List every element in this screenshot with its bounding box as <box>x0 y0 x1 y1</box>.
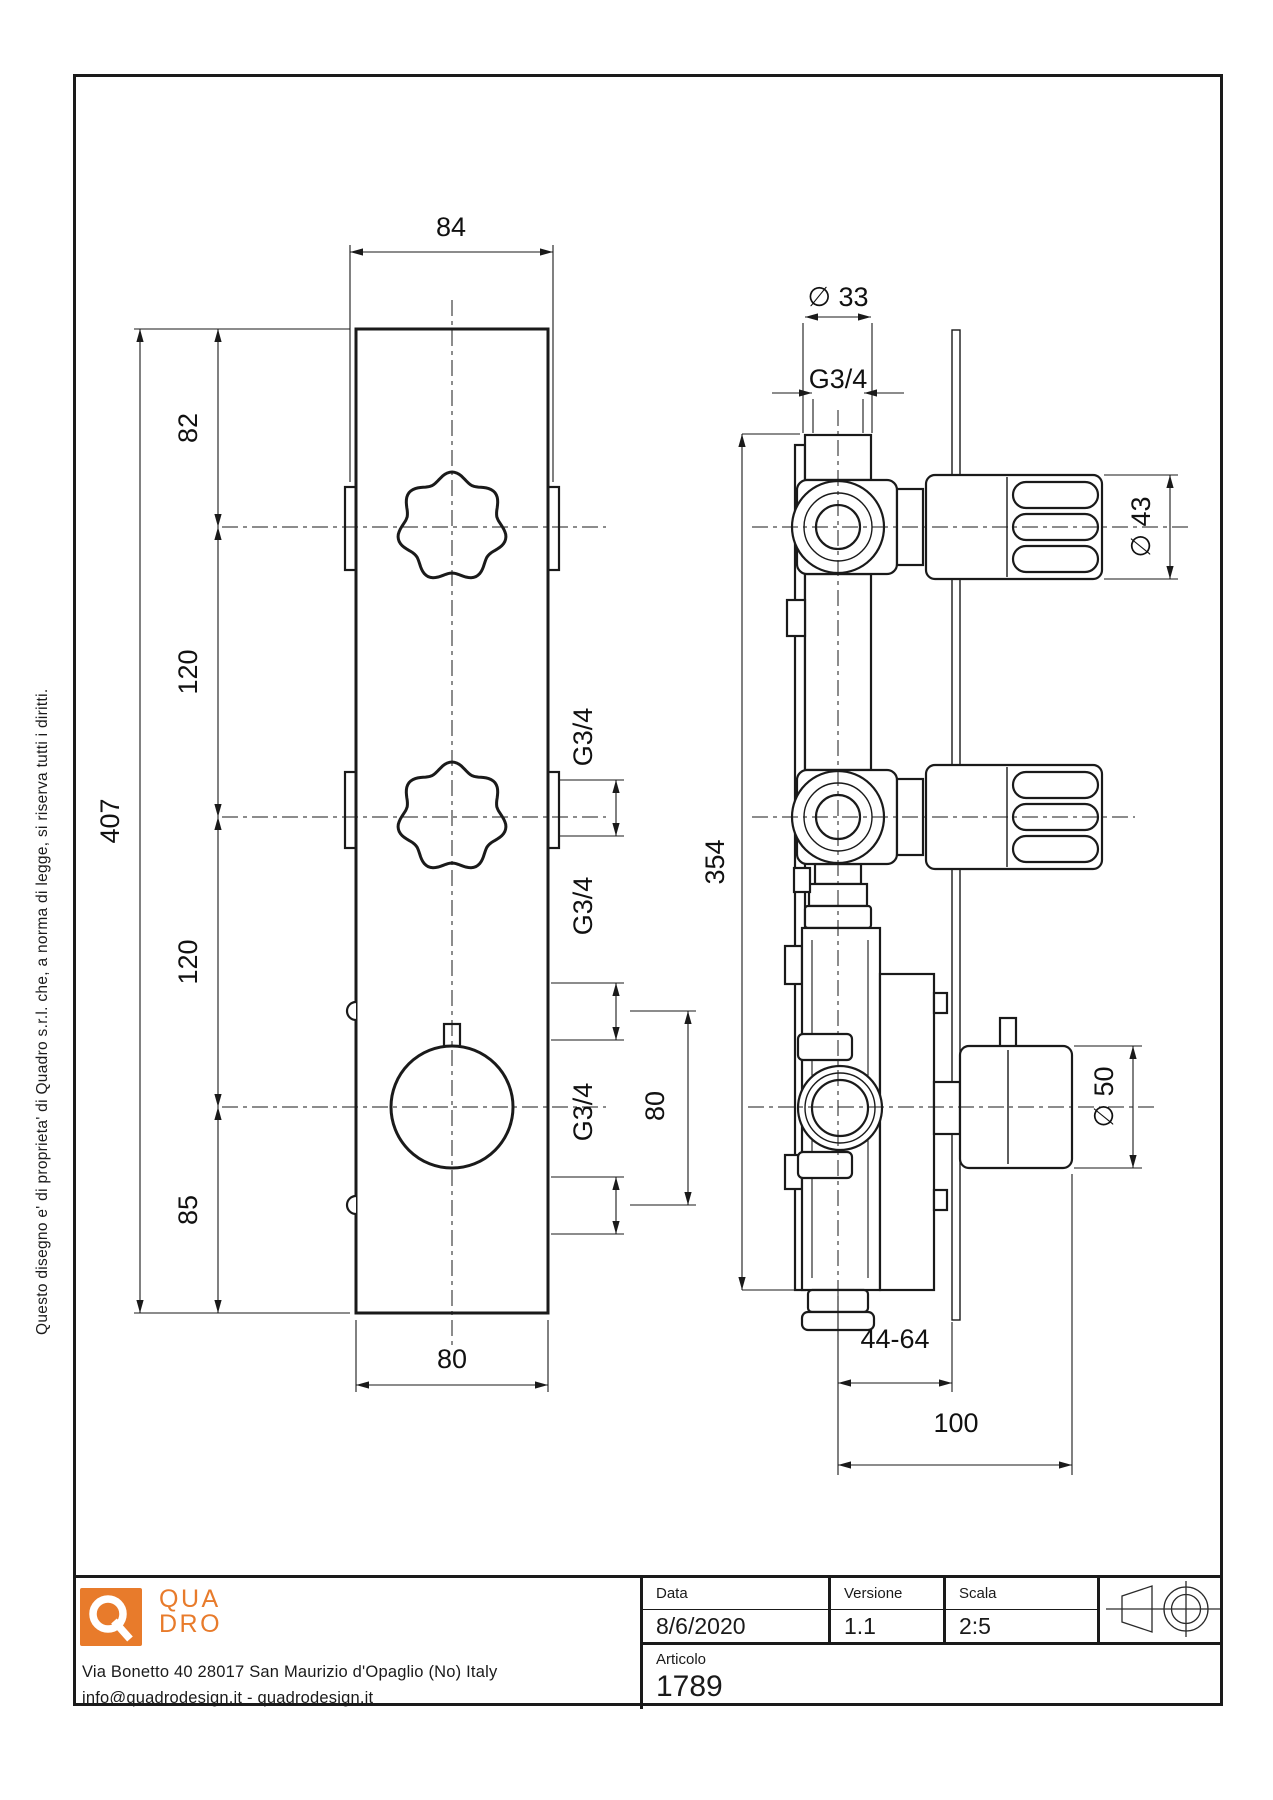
dimension-label: 100 <box>933 1408 978 1438</box>
data-label: Data <box>643 1578 828 1610</box>
side-port-tab <box>548 487 559 570</box>
dimension-label: ∅ 33 <box>807 282 868 312</box>
first-angle-projection-icon <box>1100 1578 1226 1642</box>
quadro-logo <box>80 1588 142 1651</box>
knob-neck <box>934 1082 960 1134</box>
cartridge-clamp <box>798 1152 852 1178</box>
mount-lug <box>794 868 810 892</box>
dimension-label: 80 <box>437 1344 467 1374</box>
dimension-label: 84 <box>436 212 466 242</box>
articolo-value: 1789 <box>643 1668 1223 1704</box>
edge-boss <box>347 1002 356 1020</box>
dimension-label: 85 <box>173 1195 203 1225</box>
dimension-label: ∅ 43 <box>1126 496 1156 557</box>
technical-drawing: 84821201208540780G3/4G3/4G3/480∅ 33G3/43… <box>0 0 1273 1800</box>
thermostatic-cartridge <box>798 928 1072 1330</box>
dimension-label: 82 <box>173 413 203 443</box>
company-address: Via Bonetto 40 28017 San Maurizio d'Opag… <box>82 1663 497 1682</box>
cell-scala: Scala 2:5 <box>946 1578 1100 1642</box>
quadro-logo-text: QUA DRO <box>159 1587 222 1637</box>
cell-versione: Versione 1.1 <box>831 1578 946 1642</box>
scala-value: 2:5 <box>946 1610 1097 1640</box>
cover-bolt <box>934 1190 947 1210</box>
side-port-tab <box>345 487 356 570</box>
cell-articolo: Articolo 1789 <box>643 1642 1223 1709</box>
cell-data: Data 8/6/2020 <box>643 1578 831 1642</box>
scala-label: Scala <box>946 1578 1097 1610</box>
projection-symbol-cell <box>1100 1578 1223 1642</box>
title-block-table: Data 8/6/2020 Versione 1.1 Scala 2:5 <box>640 1578 1223 1709</box>
company-contacts: info@quadrodesign.it - quadrodesign.it <box>82 1689 373 1708</box>
box-cover <box>880 974 934 1290</box>
logo-line2: DRO <box>159 1612 222 1637</box>
versione-value: 1.1 <box>831 1610 943 1640</box>
dimension-label: 120 <box>173 939 203 984</box>
dimension-label: ∅ 50 <box>1089 1066 1119 1127</box>
dimension-label: 407 <box>95 798 125 843</box>
cartridge-clamp <box>798 1034 852 1060</box>
dimension-label: 44-64 <box>860 1324 929 1354</box>
dimension-label: 120 <box>173 649 203 694</box>
dimension-label: G3/4 <box>568 877 598 936</box>
cartridge-circle <box>798 1066 882 1150</box>
dimension-label: G3/4 <box>568 708 598 767</box>
articolo-label: Articolo <box>643 1645 1223 1668</box>
dimension-label: G3/4 <box>568 1083 598 1142</box>
cover-bolt <box>934 993 947 1013</box>
dimension-label: G3/4 <box>809 364 868 394</box>
drawing-sheet: Questo disegno e' di proprieta' di Quadr… <box>0 0 1273 1800</box>
dimension-label: 354 <box>700 839 730 884</box>
side-port-tab <box>548 772 559 848</box>
mount-lug <box>785 946 802 984</box>
mount-lug <box>787 600 805 636</box>
quadro-logo-icon <box>80 1588 142 1646</box>
handle-pin-side <box>1000 1018 1016 1048</box>
data-value: 8/6/2020 <box>643 1610 828 1640</box>
dimension-label: 80 <box>640 1091 670 1121</box>
versione-label: Versione <box>831 1578 943 1610</box>
edge-boss <box>347 1196 356 1214</box>
side-view <box>785 435 1102 1330</box>
logo-line1: QUA <box>159 1587 222 1612</box>
side-port-tab <box>345 772 356 848</box>
title-block: QUA DRO Via Bonetto 40 28017 San Maurizi… <box>73 1575 1223 1706</box>
